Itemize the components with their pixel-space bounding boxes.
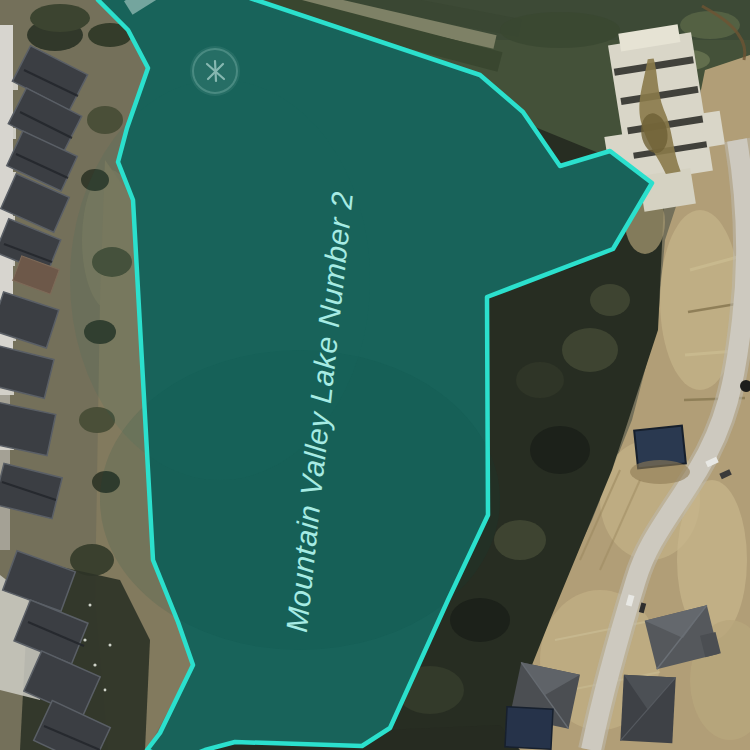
map-canvas[interactable]: Mountain Valley Lake Number 2 [0, 0, 750, 750]
